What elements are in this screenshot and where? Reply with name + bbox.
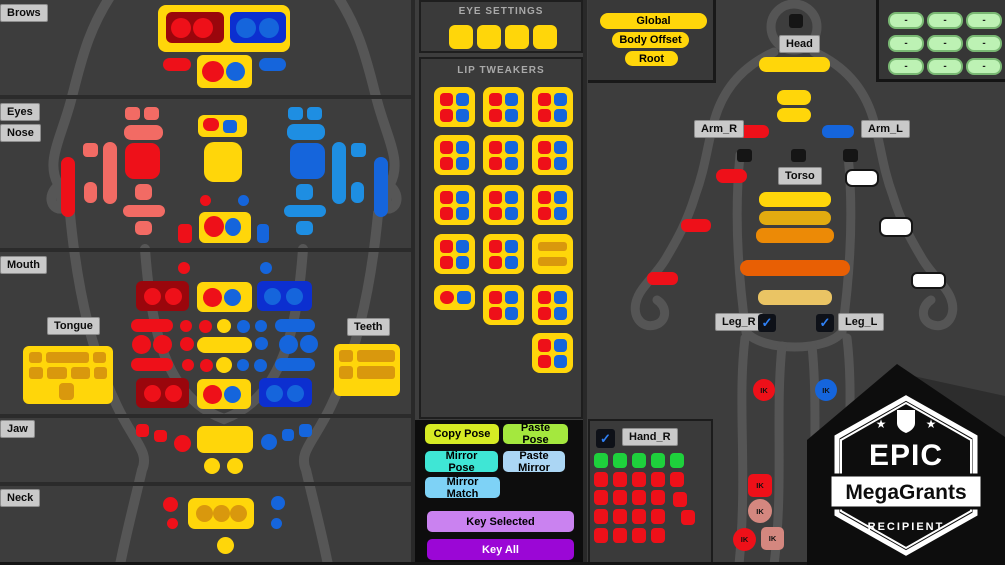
lip-tweaker-cell[interactable] — [554, 207, 567, 220]
body-control[interactable] — [737, 149, 752, 162]
hand-joint-control[interactable] — [632, 528, 646, 543]
corner-grid-button[interactable]: - — [888, 35, 924, 52]
corner-grid-button[interactable]: - — [966, 12, 1002, 29]
face-control[interactable] — [217, 537, 234, 554]
face-control[interactable] — [259, 18, 279, 38]
lip-tweaker-cell[interactable] — [440, 157, 453, 170]
ik-foot-r-control[interactable]: IK — [748, 474, 772, 497]
corner-grid-button[interactable]: - — [927, 12, 963, 29]
body-offset-button[interactable]: Body Offset — [612, 32, 689, 48]
face-control[interactable] — [202, 61, 224, 82]
face-control[interactable] — [193, 18, 213, 38]
hand-joint-control[interactable] — [594, 490, 608, 505]
face-control[interactable] — [132, 335, 151, 354]
face-control[interactable] — [332, 142, 346, 204]
face-control[interactable] — [174, 435, 191, 452]
lip-tweaker-cell[interactable] — [456, 191, 469, 204]
section-divider — [0, 95, 412, 99]
face-control[interactable] — [196, 505, 213, 522]
face-control[interactable] — [171, 18, 191, 38]
hand-joint-control[interactable] — [594, 528, 608, 543]
face-control[interactable] — [284, 205, 326, 217]
section-divider — [0, 248, 412, 252]
lip-tweakers-panel: LIP TWEAKERS — [419, 57, 583, 419]
lip-tweaker-tile[interactable] — [532, 285, 573, 325]
face-control[interactable] — [144, 288, 161, 305]
face-control[interactable] — [197, 337, 252, 353]
lip-tweaker-cell[interactable] — [456, 157, 469, 170]
face-control[interactable] — [203, 288, 222, 307]
lip-tweaker-cell[interactable] — [440, 256, 453, 269]
lip-tweaker-cell[interactable] — [505, 191, 518, 204]
root-button[interactable]: Root — [625, 51, 678, 66]
arm-r-label: Arm_R — [694, 120, 744, 138]
lip-tweaker-tile[interactable] — [532, 135, 573, 175]
face-control[interactable] — [200, 195, 211, 206]
face-control[interactable] — [47, 367, 67, 379]
hand-joint-control[interactable] — [632, 509, 646, 524]
lip-tweaker-cell[interactable] — [456, 240, 469, 253]
hand-joint-control[interactable] — [651, 472, 665, 487]
lip-tweaker-cell[interactable] — [505, 93, 518, 106]
lip-tweaker-cell[interactable] — [489, 109, 502, 122]
hand-joint-control[interactable] — [613, 453, 627, 468]
corner-grid-button[interactable]: - — [966, 35, 1002, 52]
face-control[interactable] — [351, 143, 366, 157]
face-control[interactable] — [178, 224, 192, 243]
hand-r-checkbox[interactable]: ✓ — [596, 429, 615, 448]
lip-tweaker-cell[interactable] — [489, 191, 502, 204]
face-control[interactable] — [271, 496, 285, 510]
face-control[interactable] — [226, 62, 245, 81]
face-control[interactable] — [200, 359, 213, 372]
lip-tweaker-cell[interactable] — [505, 307, 518, 320]
leg-l-label: Leg_L — [838, 313, 884, 331]
badge-title: EPIC — [869, 439, 943, 472]
lip-tweaker-cell[interactable] — [489, 157, 502, 170]
lip-tweaker-bar[interactable] — [538, 257, 567, 266]
lip-tweaker-tile[interactable] — [483, 135, 524, 175]
face-control[interactable] — [275, 319, 315, 332]
corner-grid-button[interactable]: - — [888, 12, 924, 29]
face-control[interactable] — [136, 424, 149, 437]
face-control[interactable] — [46, 352, 89, 363]
face-control[interactable] — [167, 518, 178, 529]
lip-tweaker-cell[interactable] — [456, 93, 469, 106]
section-divider — [0, 414, 412, 418]
ik-foot-r-pole-control[interactable]: IK — [748, 499, 772, 523]
lip-tweaker-tile[interactable] — [434, 135, 475, 175]
lip-tweaker-tile[interactable] — [532, 87, 573, 127]
face-control[interactable] — [286, 288, 303, 305]
badge-subtitle: MegaGrants — [845, 481, 966, 504]
torso-label: Torso — [778, 167, 822, 185]
hand-joint-control[interactable] — [594, 472, 608, 487]
lip-tweaker-cell[interactable] — [440, 291, 454, 304]
star-icon: ★ — [876, 417, 887, 431]
lip-tweakers-grid — [421, 59, 581, 417]
lip-tweaker-cell[interactable] — [538, 307, 551, 320]
face-control[interactable] — [299, 424, 312, 437]
face-control[interactable] — [180, 337, 194, 351]
face-control[interactable] — [144, 107, 159, 120]
nose-label: Nose — [0, 124, 41, 142]
face-control[interactable] — [204, 458, 220, 474]
lip-tweaker-cell[interactable] — [505, 291, 518, 304]
lip-tweaker-cell[interactable] — [456, 109, 469, 122]
face-control[interactable] — [296, 184, 313, 200]
body-control[interactable] — [740, 260, 850, 276]
face-control[interactable] — [204, 142, 242, 182]
face-control[interactable] — [199, 320, 212, 333]
lip-tweaker-tile[interactable] — [483, 87, 524, 127]
corner-grid-button[interactable]: - — [927, 58, 963, 75]
face-control[interactable] — [154, 430, 167, 442]
ik-heel-r-control[interactable]: IK — [761, 527, 784, 550]
eye-settings-buttons — [421, 2, 581, 51]
face-control[interactable] — [300, 335, 318, 353]
face-control[interactable] — [287, 385, 304, 402]
face-control[interactable] — [260, 262, 272, 274]
face-control[interactable] — [83, 143, 98, 157]
leg-l-checkbox[interactable]: ✓ — [816, 314, 834, 332]
face-control[interactable] — [61, 157, 75, 217]
hand-joint-control[interactable] — [613, 490, 627, 505]
ik-toe-r-control[interactable]: IK — [733, 528, 756, 551]
eye-setting-button[interactable] — [505, 25, 529, 49]
lip-tweaker-tile[interactable] — [483, 234, 524, 274]
face-control[interactable] — [203, 385, 222, 404]
lip-tweaker-cell[interactable] — [538, 191, 551, 204]
hand-joint-control[interactable] — [632, 453, 646, 468]
hand-r-label: Hand_R — [622, 428, 678, 446]
body-control[interactable] — [879, 217, 913, 237]
lip-tweaker-cell[interactable] — [554, 339, 567, 352]
face-control[interactable] — [204, 216, 224, 237]
face-control[interactable] — [271, 518, 282, 529]
face-control[interactable] — [275, 358, 315, 371]
lip-tweaker-cell[interactable] — [440, 141, 453, 154]
brows-label: Brows — [0, 4, 48, 22]
lip-tweaker-cell[interactable] — [440, 240, 453, 253]
neck-label: Neck — [0, 489, 40, 507]
body-control[interactable] — [681, 219, 711, 232]
hand-joint-control[interactable] — [651, 453, 665, 468]
badge-hexagon: ★ ★ EPIC MegaGrants RECIPIENT — [795, 352, 1005, 565]
body-control[interactable] — [759, 192, 831, 207]
hand-joint-control[interactable] — [632, 490, 646, 505]
face-control[interactable] — [125, 107, 140, 120]
face-control[interactable] — [131, 358, 173, 371]
face-control[interactable] — [163, 497, 178, 512]
face-control[interactable] — [357, 366, 395, 379]
lip-tweaker-tile[interactable] — [532, 185, 573, 225]
animation-picker-app: EYE SETTINGS LIP TWEAKERS Copy Pose Past… — [0, 0, 1005, 565]
lip-tweaker-tile[interactable] — [532, 333, 573, 373]
lip-tweaker-cell[interactable] — [489, 256, 502, 269]
eye-setting-button[interactable] — [477, 25, 501, 49]
lip-tweaker-cell[interactable] — [456, 141, 469, 154]
face-control[interactable] — [351, 182, 364, 203]
paste-mirror-button[interactable]: Paste Mirror — [503, 451, 565, 472]
face-control[interactable] — [216, 357, 232, 373]
face-control[interactable] — [288, 107, 303, 120]
face-control[interactable] — [257, 224, 269, 243]
lip-tweaker-cell[interactable] — [457, 291, 471, 304]
face-control[interactable] — [307, 107, 322, 120]
body-control[interactable] — [716, 169, 747, 183]
face-control[interactable] — [125, 143, 160, 179]
lip-tweaker-tile[interactable] — [532, 234, 573, 274]
lip-tweaker-cell[interactable] — [554, 93, 567, 106]
mirror-pose-button[interactable]: Mirror Pose — [425, 451, 498, 472]
ik-knee-r-control[interactable]: IK — [753, 379, 775, 401]
face-control[interactable] — [29, 367, 43, 379]
body-control[interactable] — [759, 57, 830, 72]
body-control[interactable] — [756, 228, 834, 243]
lip-tweaker-cell[interactable] — [489, 291, 502, 304]
body-control[interactable] — [791, 149, 806, 162]
face-control[interactable] — [165, 288, 182, 305]
hand-joint-control[interactable] — [673, 492, 687, 507]
lip-tweaker-cell[interactable] — [505, 207, 518, 220]
face-control[interactable] — [135, 221, 152, 235]
face-control[interactable] — [29, 352, 42, 363]
face-control[interactable] — [93, 352, 106, 363]
column-separator — [583, 0, 587, 565]
corner-grid-button[interactable]: - — [966, 58, 1002, 75]
face-control[interactable] — [124, 125, 163, 140]
lip-tweaker-tile[interactable] — [434, 234, 475, 274]
lip-tweaker-cell[interactable] — [456, 256, 469, 269]
face-control[interactable] — [255, 337, 268, 350]
face-control[interactable] — [203, 118, 219, 131]
body-control[interactable] — [758, 290, 832, 305]
lip-tweaker-cell[interactable] — [554, 191, 567, 204]
lip-tweaker-cell[interactable] — [489, 93, 502, 106]
corner-grid-button[interactable]: - — [888, 58, 924, 75]
face-control[interactable] — [94, 367, 107, 379]
face-control[interactable] — [227, 458, 243, 474]
face-control[interactable] — [71, 367, 90, 379]
tongue-label: Tongue — [47, 317, 100, 335]
face-control[interactable] — [287, 124, 325, 140]
copy-pose-button[interactable]: Copy Pose — [425, 424, 499, 444]
body-control[interactable] — [822, 125, 854, 138]
star-icon: ★ — [926, 417, 937, 431]
lip-tweaker-cell[interactable] — [538, 339, 551, 352]
lip-tweaker-cell[interactable] — [538, 109, 551, 122]
face-control[interactable] — [266, 385, 283, 402]
face-control[interactable] — [279, 335, 298, 354]
hand-joint-control[interactable] — [613, 528, 627, 543]
lip-tweaker-cell[interactable] — [538, 141, 551, 154]
face-control[interactable] — [225, 218, 241, 236]
face-control[interactable] — [296, 221, 313, 235]
face-control[interactable] — [180, 320, 192, 332]
face-control[interactable] — [237, 359, 249, 371]
lip-tweaker-cell[interactable] — [554, 157, 567, 170]
hand-joint-control[interactable] — [651, 490, 665, 505]
lip-tweaker-cell[interactable] — [554, 109, 567, 122]
section-divider — [0, 482, 412, 486]
hand-joint-control[interactable] — [670, 453, 684, 468]
face-control[interactable] — [59, 383, 74, 400]
lip-tweaker-bar[interactable] — [538, 242, 567, 251]
leg-r-checkbox[interactable]: ✓ — [758, 314, 776, 332]
face-control[interactable] — [224, 289, 241, 306]
face-control[interactable] — [261, 434, 277, 450]
face-control[interactable] — [236, 18, 256, 38]
body-control[interactable] — [789, 14, 803, 28]
hand-joint-control[interactable] — [681, 510, 695, 525]
lip-tweaker-tile[interactable] — [434, 87, 475, 127]
face-control[interactable] — [217, 319, 231, 333]
lip-tweaker-cell[interactable] — [489, 240, 502, 253]
lip-tweaker-cell[interactable] — [554, 141, 567, 154]
lip-tweaker-cell[interactable] — [489, 141, 502, 154]
face-control[interactable] — [223, 120, 237, 133]
key-all-button[interactable]: Key All — [427, 539, 574, 560]
key-selected-button[interactable]: Key Selected — [427, 511, 574, 532]
face-control[interactable] — [197, 426, 253, 453]
leg-r-label: Leg_R — [715, 313, 763, 331]
lip-tweaker-cell[interactable] — [505, 141, 518, 154]
face-control[interactable] — [259, 58, 286, 71]
lip-tweaker-cell[interactable] — [554, 355, 567, 368]
eye-setting-button[interactable] — [533, 25, 557, 49]
mouth-label: Mouth — [0, 256, 47, 274]
face-control[interactable] — [213, 505, 230, 522]
lip-tweaker-cell[interactable] — [538, 207, 551, 220]
hand-joint-control[interactable] — [594, 453, 608, 468]
body-control[interactable] — [911, 272, 946, 289]
lip-tweaker-cell[interactable] — [538, 93, 551, 106]
face-control[interactable] — [357, 350, 395, 362]
lip-tweaker-cell[interactable] — [505, 109, 518, 122]
lip-tweaker-cell[interactable] — [538, 157, 551, 170]
eye-settings-panel: EYE SETTINGS — [419, 0, 583, 53]
eye-setting-button[interactable] — [449, 25, 473, 49]
face-control[interactable] — [153, 335, 172, 354]
arm-l-label: Arm_L — [861, 120, 910, 138]
lip-tweaker-tile[interactable] — [434, 285, 475, 310]
lip-tweaker-tile[interactable] — [483, 285, 524, 325]
lip-tweaker-cell[interactable] — [456, 207, 469, 220]
lip-tweaker-cell[interactable] — [440, 109, 453, 122]
shield-icon — [897, 410, 915, 433]
hand-joint-control[interactable] — [594, 509, 608, 524]
lip-tweaker-cell[interactable] — [538, 355, 551, 368]
face-control[interactable] — [339, 366, 353, 379]
lip-tweaker-cell[interactable] — [489, 207, 502, 220]
face-control[interactable] — [135, 184, 152, 200]
face-control[interactable] — [282, 429, 294, 441]
lip-tweaker-cell[interactable] — [554, 307, 567, 320]
lip-tweaker-cell[interactable] — [538, 291, 551, 304]
face-control[interactable] — [103, 142, 117, 204]
megagrants-badge: ★ ★ EPIC MegaGrants RECIPIENT — [795, 352, 1005, 565]
face-control[interactable] — [238, 195, 249, 206]
paste-pose-button[interactable]: Paste Pose — [503, 424, 568, 444]
face-control[interactable] — [165, 385, 182, 402]
lip-tweaker-cell[interactable] — [440, 93, 453, 106]
corner-grid-button[interactable]: - — [927, 35, 963, 52]
mirror-match-button[interactable]: Mirror Match — [425, 477, 500, 498]
face-control[interactable] — [84, 182, 97, 203]
face-control[interactable] — [230, 505, 247, 522]
lip-tweaker-cell[interactable] — [505, 157, 518, 170]
global-button[interactable]: Global — [600, 13, 707, 29]
lip-tweaker-cell[interactable] — [489, 307, 502, 320]
face-control[interactable] — [182, 359, 194, 371]
body-control[interactable] — [647, 272, 678, 285]
face-control[interactable] — [254, 359, 267, 372]
face-control[interactable] — [237, 320, 250, 333]
lip-tweaker-cell[interactable] — [440, 207, 453, 220]
badge-footer: RECIPIENT — [868, 521, 945, 533]
lip-tweaker-cell[interactable] — [505, 256, 518, 269]
body-control[interactable] — [845, 169, 879, 187]
face-control[interactable] — [339, 350, 353, 362]
hand-joint-control[interactable] — [613, 509, 627, 524]
head-label: Head — [779, 35, 820, 53]
face-control[interactable] — [290, 143, 325, 179]
lip-tweaker-cell[interactable] — [505, 240, 518, 253]
teeth-label: Teeth — [347, 318, 390, 336]
lip-tweaker-cell[interactable] — [440, 191, 453, 204]
face-control[interactable] — [264, 288, 281, 305]
face-control[interactable] — [123, 205, 165, 217]
hand-joint-control[interactable] — [651, 509, 665, 524]
face-control[interactable] — [255, 320, 267, 332]
hand-joint-control[interactable] — [651, 528, 665, 543]
lip-tweaker-cell[interactable] — [554, 291, 567, 304]
hand-joint-control[interactable] — [670, 472, 684, 487]
lip-tweaker-tile[interactable] — [434, 185, 475, 225]
face-control[interactable] — [163, 58, 191, 71]
eyes-label: Eyes — [0, 103, 40, 121]
face-control[interactable] — [144, 385, 161, 402]
body-control[interactable] — [759, 211, 831, 225]
jaw-label: Jaw — [0, 420, 35, 438]
body-control[interactable] — [777, 108, 811, 122]
lip-tweaker-tile[interactable] — [483, 185, 524, 225]
body-control[interactable] — [843, 149, 858, 162]
body-control[interactable] — [777, 90, 811, 105]
face-control[interactable] — [178, 262, 190, 274]
face-control[interactable] — [224, 386, 241, 403]
hand-joint-control[interactable] — [632, 472, 646, 487]
hand-joint-control[interactable] — [613, 472, 627, 487]
face-control[interactable] — [131, 319, 173, 332]
face-control[interactable] — [374, 157, 388, 217]
